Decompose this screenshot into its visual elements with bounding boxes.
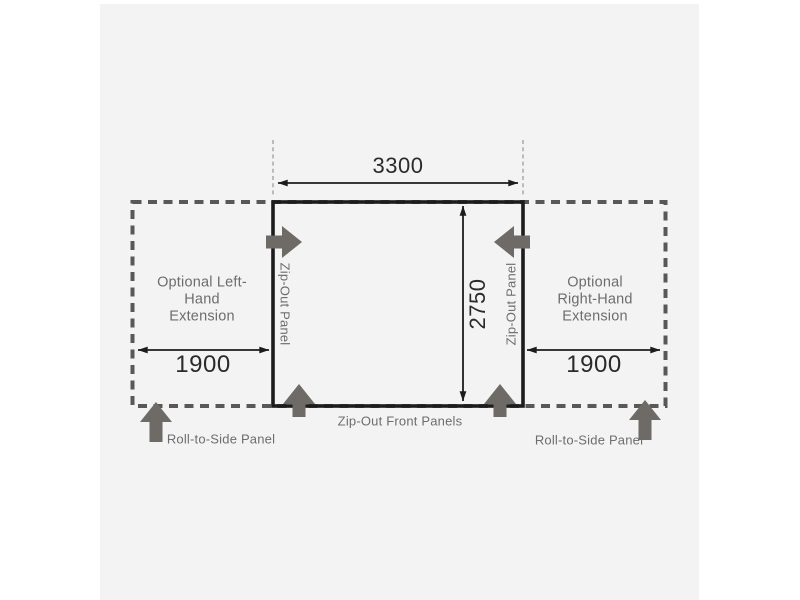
left-roll-panel-label: Roll-to-Side Panel bbox=[167, 432, 275, 447]
front-zip-panels-label: Zip-Out Front Panels bbox=[338, 414, 463, 429]
front-width-dimension-value: 3300 bbox=[373, 153, 424, 179]
right-zip-panel-label: Zip-Out Panel bbox=[504, 263, 519, 346]
left-extension-dimension-value: 1900 bbox=[175, 351, 230, 379]
depth-dimension-value: 2750 bbox=[465, 279, 491, 330]
right-extension-dimension-value: 1900 bbox=[566, 351, 621, 379]
zip-out-front-left-arrow-icon bbox=[283, 384, 315, 417]
left-zip-panel-label: Zip-Out Panel bbox=[278, 263, 293, 346]
zip-out-front-right-arrow-icon bbox=[484, 384, 516, 417]
left-extension-label: Optional Left-Hand Extension bbox=[156, 274, 248, 325]
diagram-overlay bbox=[0, 0, 800, 600]
diagram-page: 3300 2750 1900 1900 Optional Left-Hand E… bbox=[0, 0, 800, 600]
right-extension-label: Optional Right-Hand Extension bbox=[549, 274, 641, 325]
right-roll-panel-label: Roll-to-Side Panel bbox=[535, 433, 643, 448]
